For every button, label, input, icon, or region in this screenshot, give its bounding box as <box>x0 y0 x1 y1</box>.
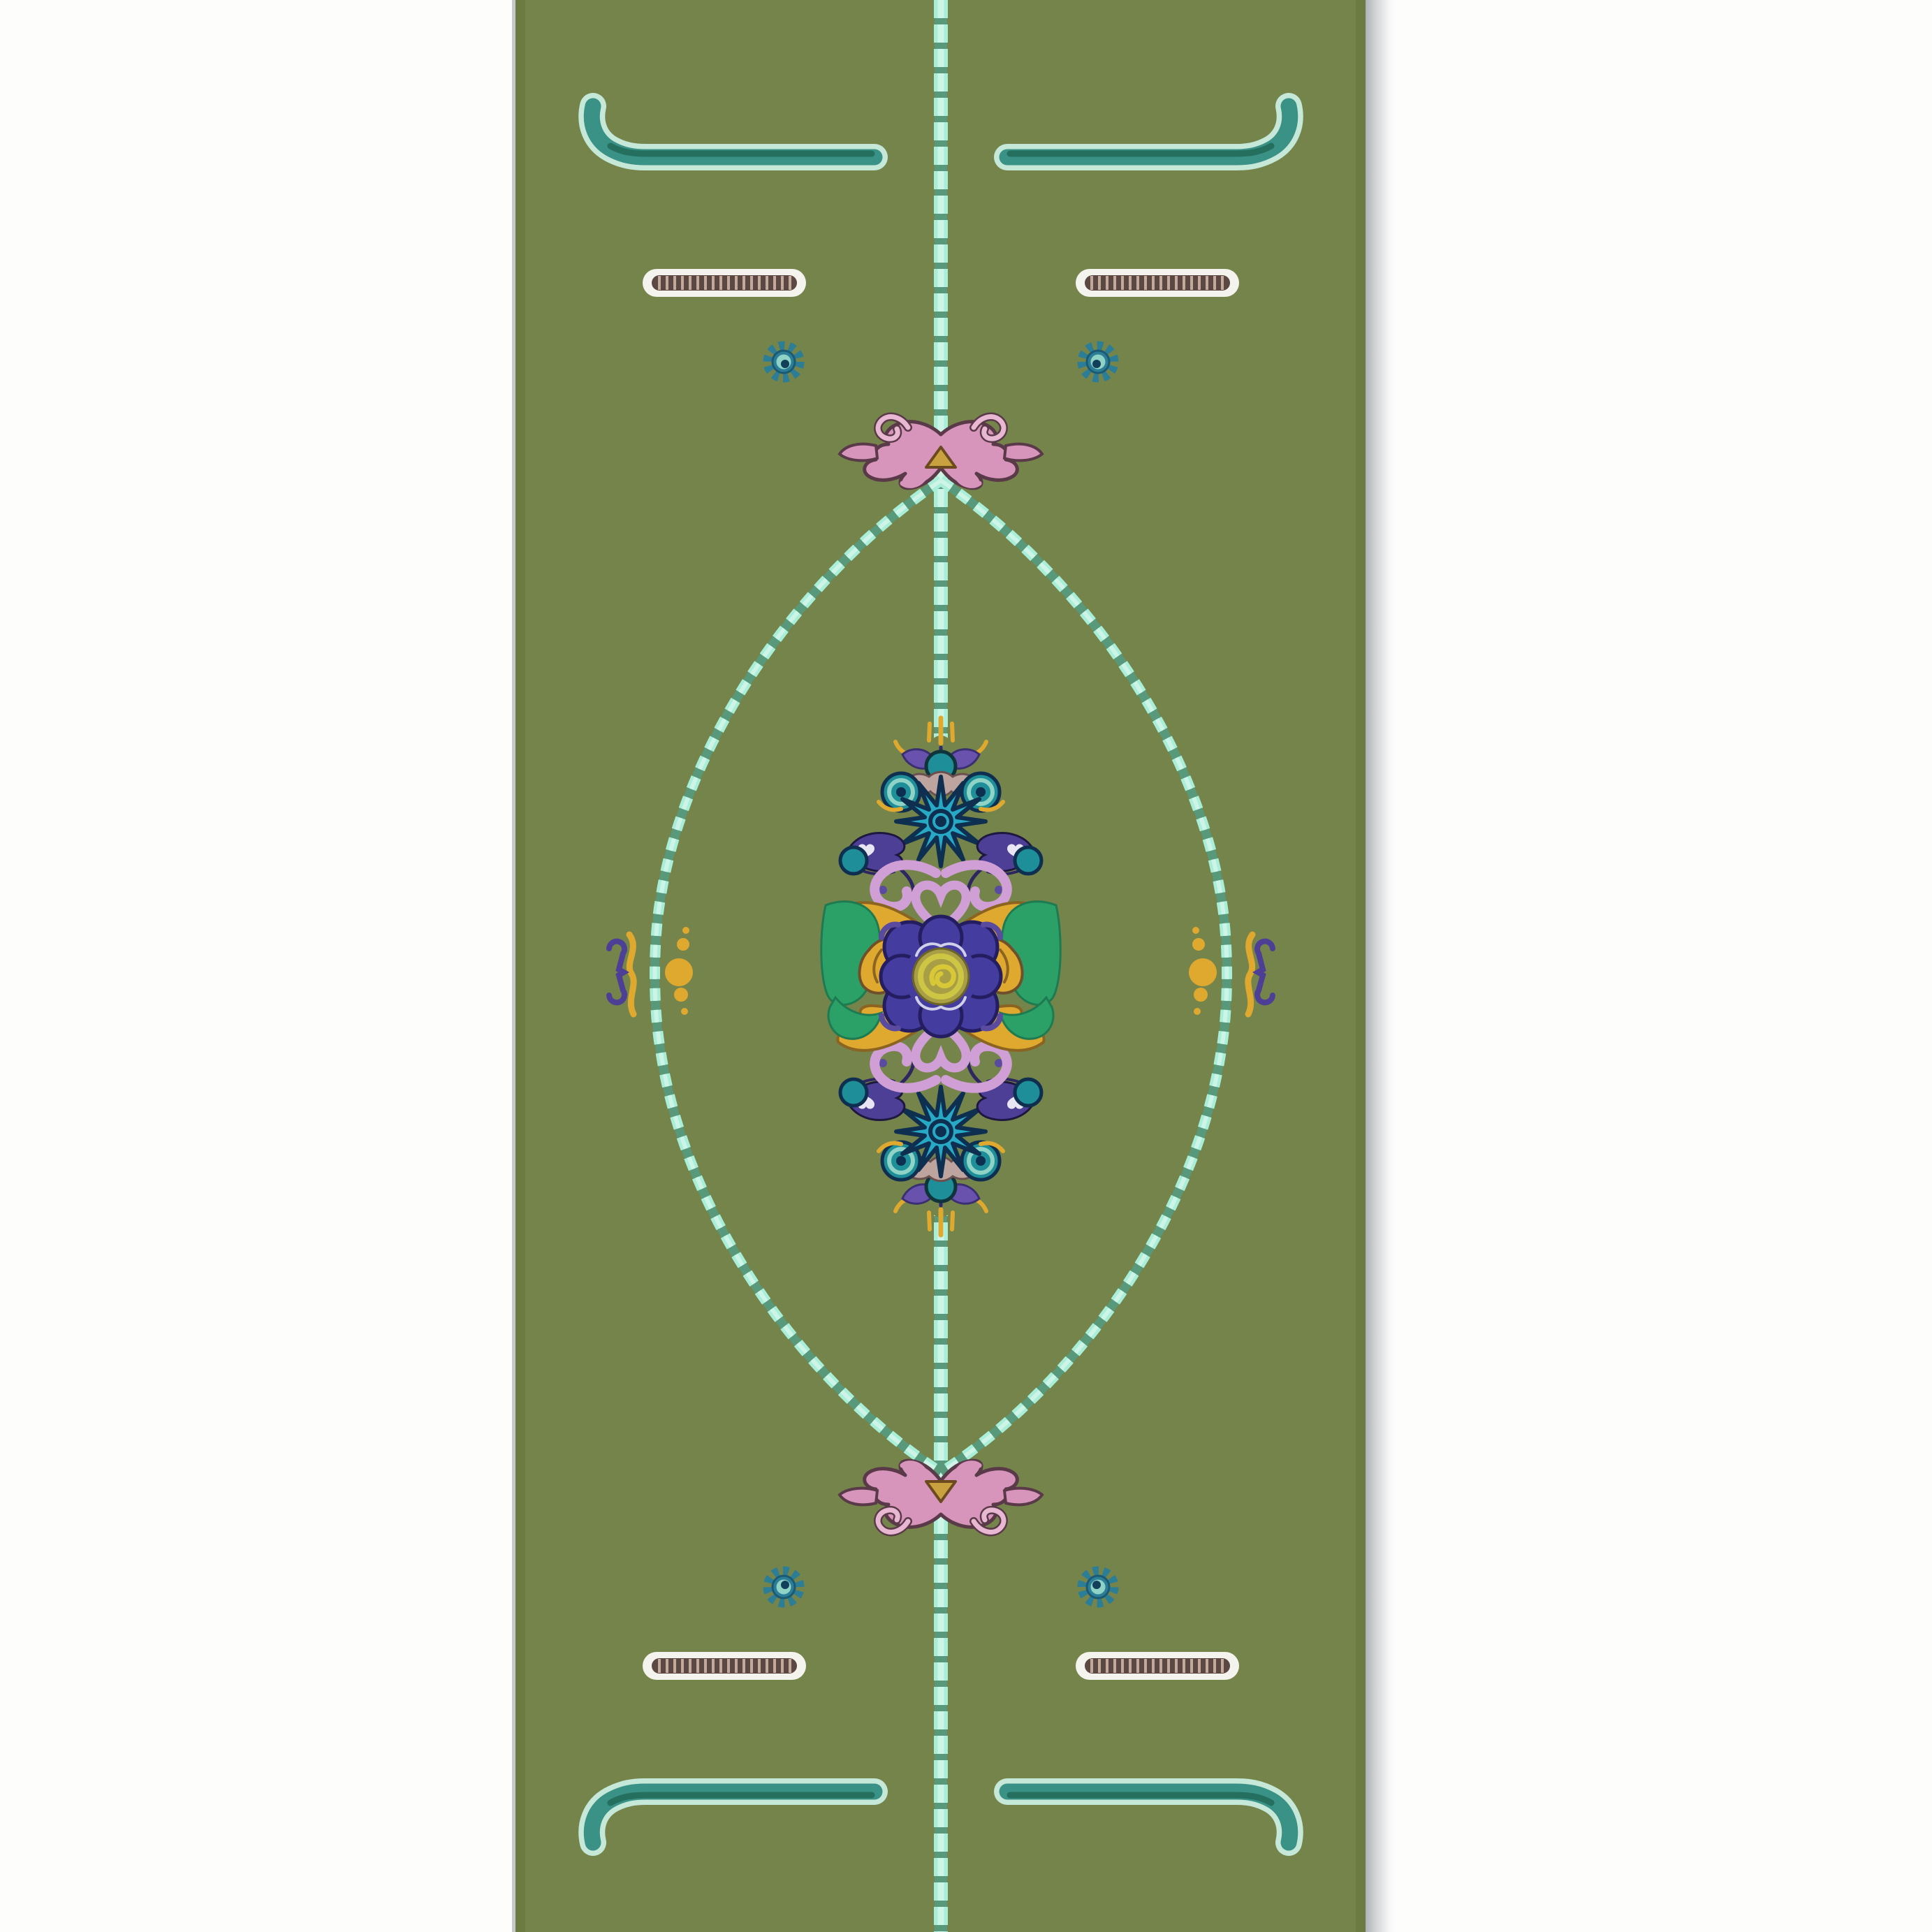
mat-left-edge <box>515 0 525 1932</box>
mat-right-shadow <box>1366 0 1398 1932</box>
striped-pill-icon <box>1076 269 1239 297</box>
teal-bead <box>840 847 867 874</box>
yoga-mat-artwork: Olive green yoga mat with teal beaded al… <box>0 0 1932 1932</box>
medallion-center-row <box>821 902 1061 1039</box>
yoga-mat-scene <box>0 0 1932 1932</box>
mat-right-edge <box>1356 0 1366 1932</box>
teal-bead <box>1015 847 1041 874</box>
striped-pill-icon <box>643 269 806 297</box>
mat-left-shadow <box>512 0 515 1932</box>
indigo-rose <box>881 916 1001 1037</box>
